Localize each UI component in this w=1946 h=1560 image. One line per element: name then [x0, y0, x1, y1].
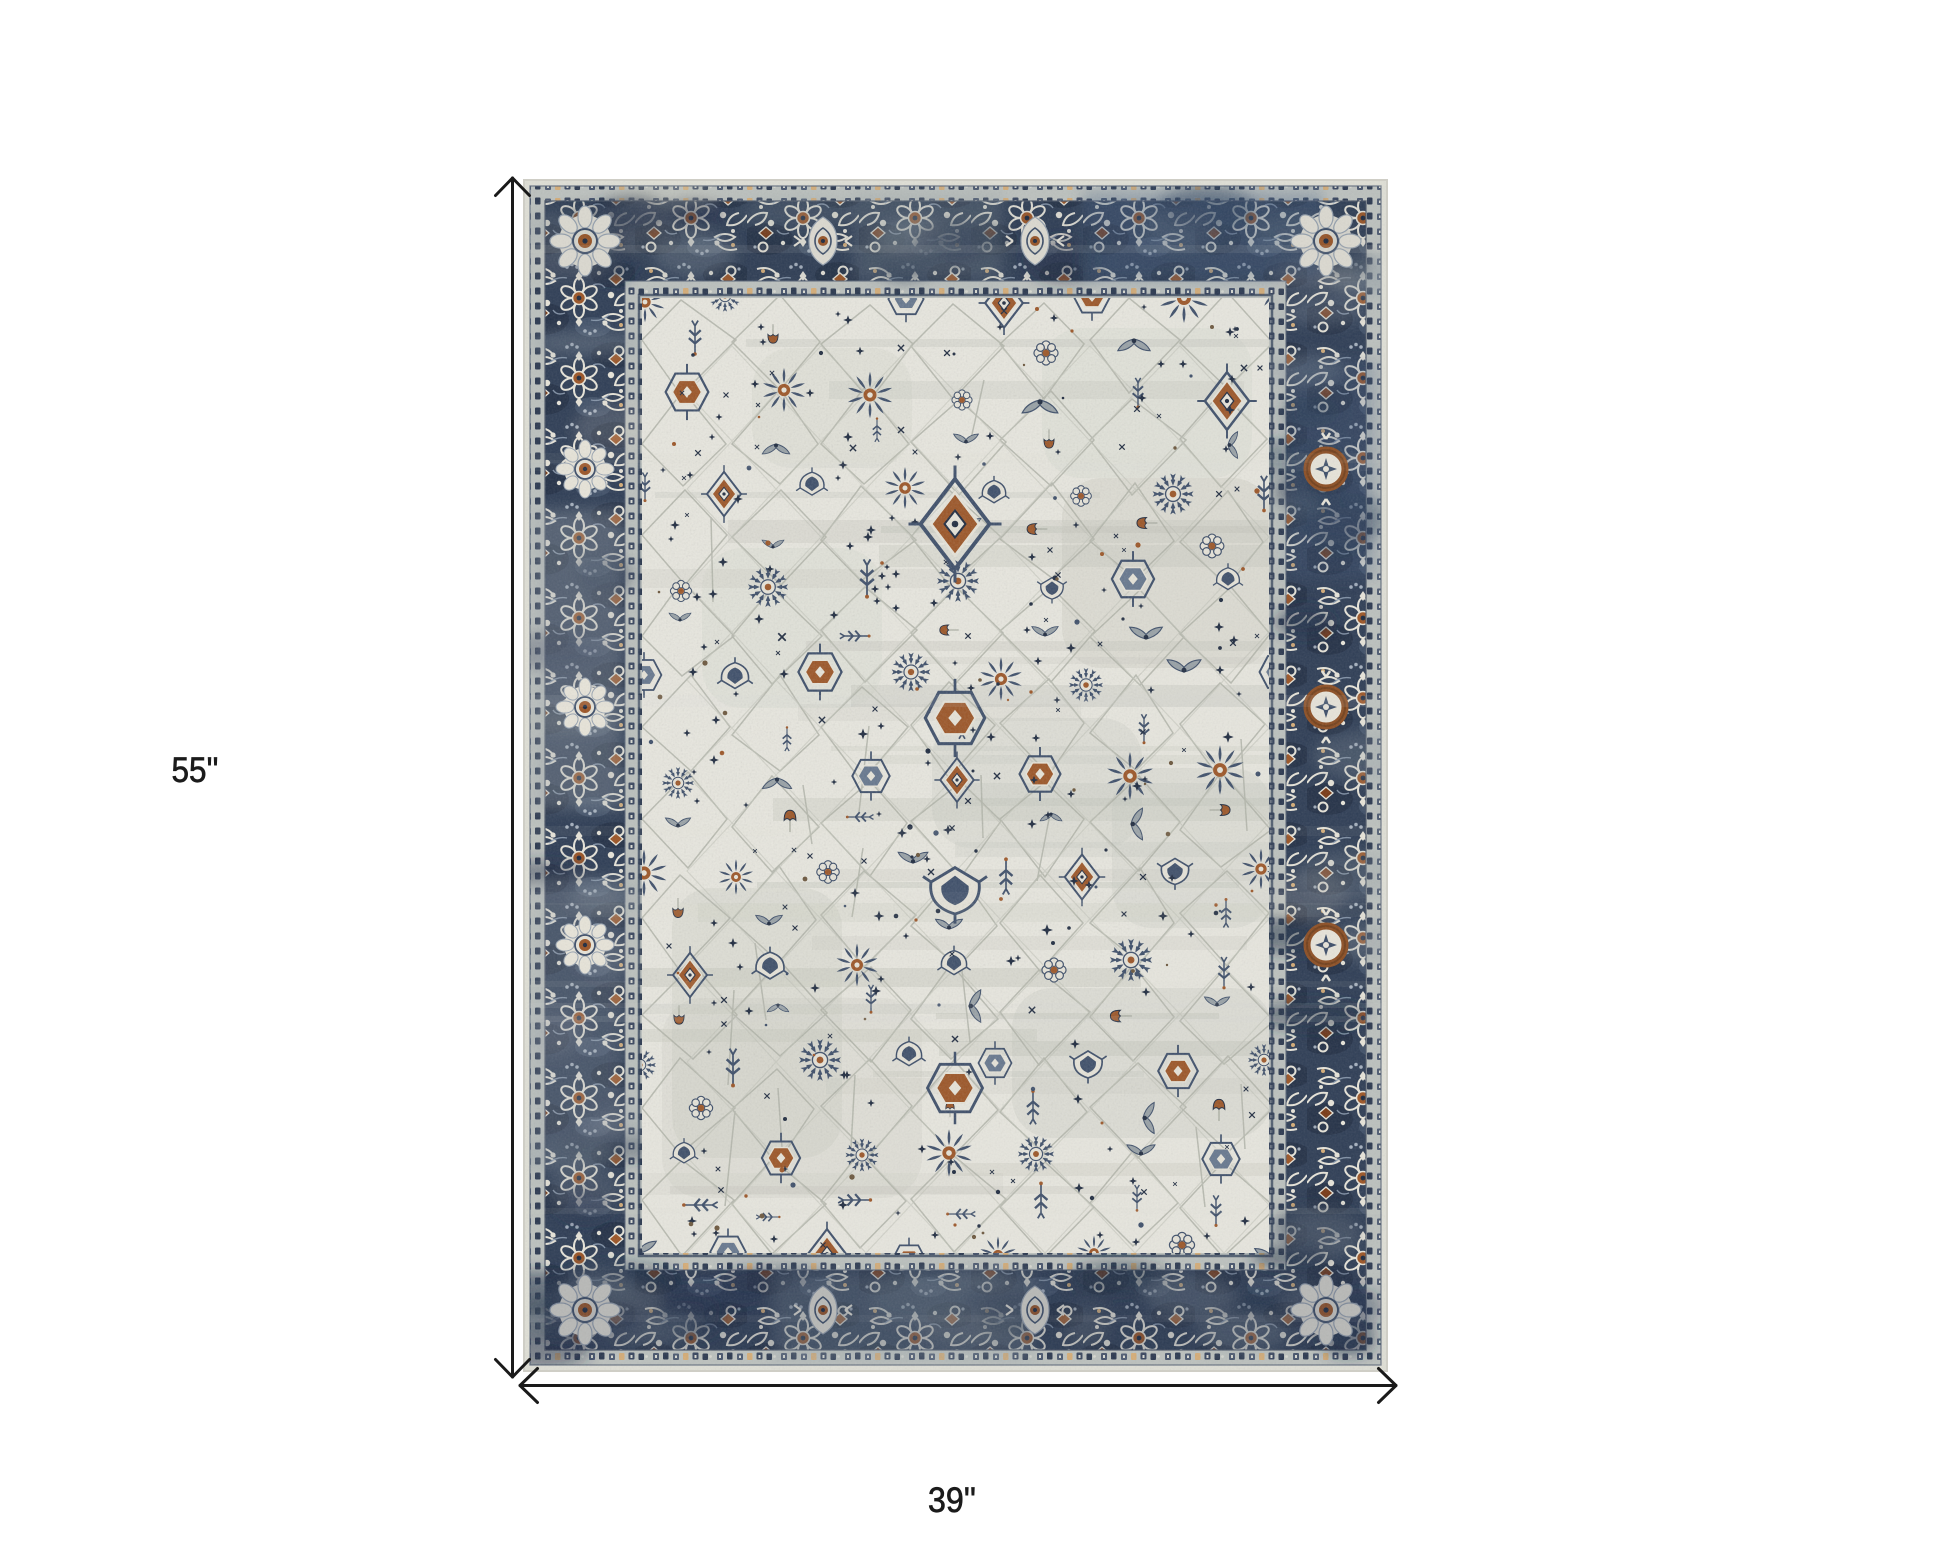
- svg-text:55'': 55'': [172, 751, 219, 790]
- svg-text:39'': 39'': [928, 1481, 976, 1520]
